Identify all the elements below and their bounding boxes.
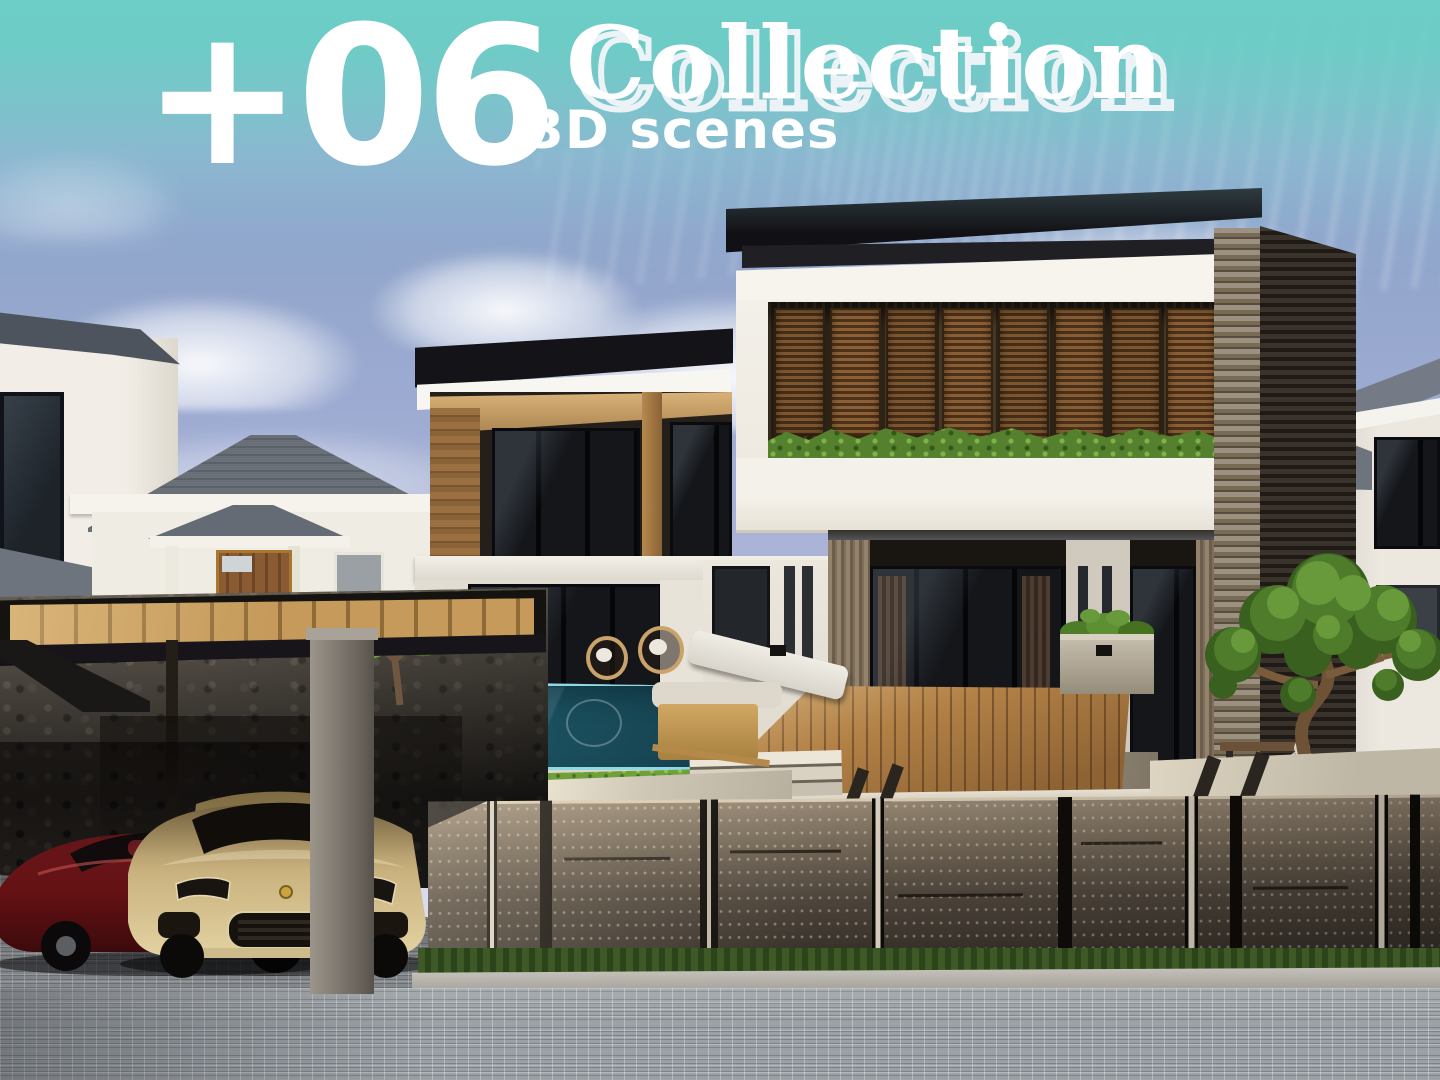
shutter-bay bbox=[768, 302, 1220, 442]
fence-sunlight-overlay bbox=[428, 794, 1440, 969]
wall-lamp bbox=[770, 645, 786, 656]
balcony-recess bbox=[430, 392, 732, 564]
planter-box bbox=[1060, 634, 1154, 694]
chair-reflection bbox=[566, 699, 622, 747]
cobblestone-street bbox=[0, 988, 1440, 1080]
chair-cushion bbox=[649, 639, 667, 655]
rattan-chair bbox=[638, 626, 684, 674]
wood-louver-shutter bbox=[1166, 308, 1217, 440]
wood-louver-shutter bbox=[998, 308, 1049, 440]
concrete-pillar bbox=[310, 636, 374, 994]
wood-louver-shutter bbox=[1110, 308, 1161, 440]
wood-louver-shutter bbox=[1054, 308, 1105, 440]
overlay-subtitle-text: 3D scenes bbox=[527, 101, 839, 162]
rattan-chair bbox=[586, 636, 628, 680]
wood-louver-shutter bbox=[886, 308, 937, 438]
bonsai-tree bbox=[1178, 535, 1440, 787]
door-transom bbox=[222, 556, 252, 572]
wood-louver-shutter bbox=[830, 308, 881, 438]
gold-porsche-suv bbox=[100, 716, 462, 984]
planter-parapet bbox=[736, 458, 1246, 533]
connector-slit-window bbox=[802, 566, 813, 668]
wood-louver-shutter bbox=[774, 308, 825, 436]
wood-louver-shutter bbox=[942, 308, 993, 440]
wall-lamp bbox=[1096, 645, 1112, 656]
hero-render-image: +06 Collection Collection 3D scenes bbox=[0, 0, 1440, 1080]
neighbor-right-window-upper bbox=[1374, 437, 1440, 549]
wood-stool bbox=[652, 682, 784, 778]
street-shading bbox=[0, 988, 1440, 1080]
overlay-count-text: +06 bbox=[142, 0, 552, 209]
concrete-slab-fence bbox=[428, 794, 1440, 969]
balcony-window-right bbox=[670, 422, 732, 564]
chair-cushion bbox=[596, 648, 612, 662]
balcony-window-left bbox=[492, 428, 640, 564]
balcony-wood-post bbox=[642, 392, 662, 564]
pillar-cap bbox=[306, 628, 378, 640]
